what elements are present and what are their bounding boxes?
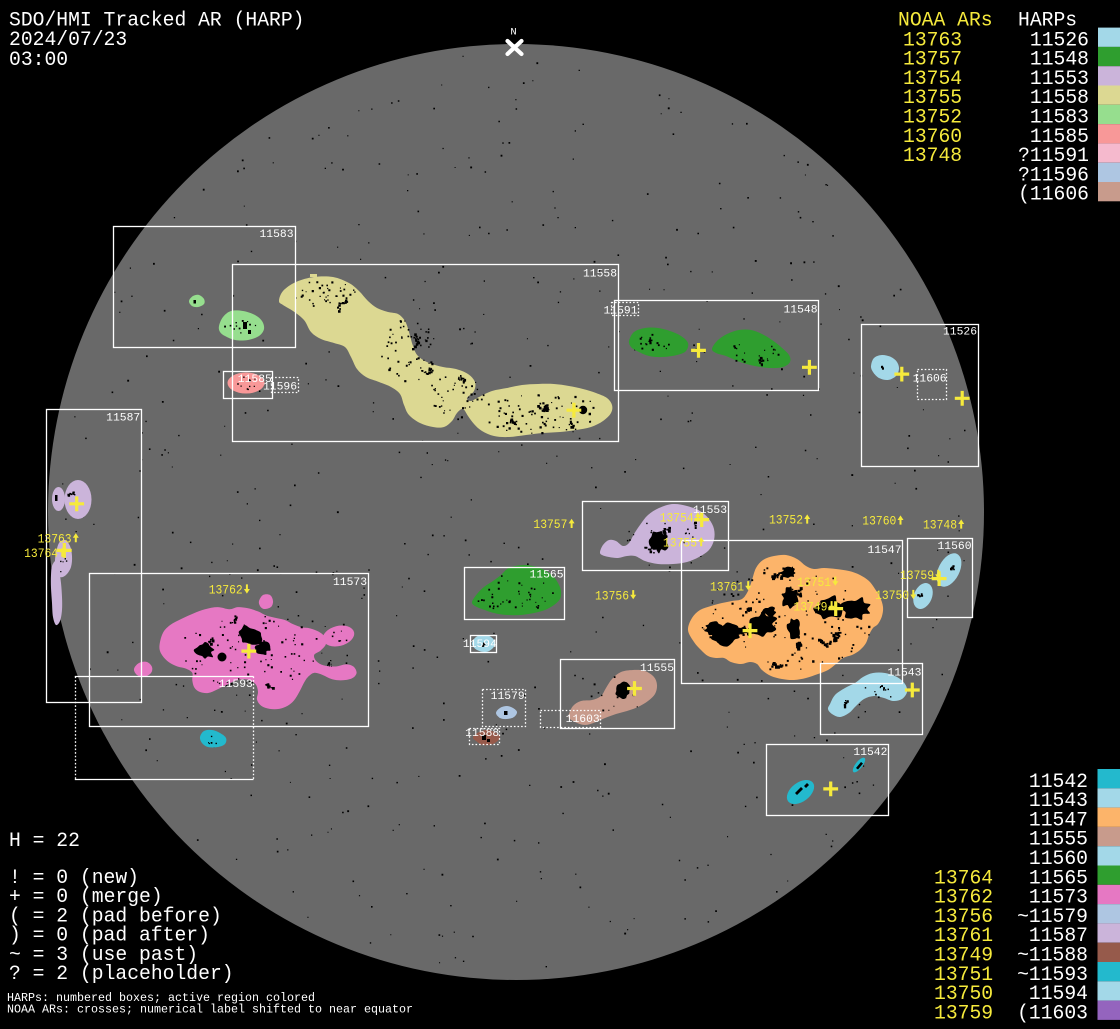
svg-text:03:00: 03:00: [9, 49, 68, 72]
svg-text:13748: 13748: [903, 145, 962, 168]
svg-text:11596: 11596: [263, 381, 297, 393]
svg-text:? = 2 (placeholder): ? = 2 (placeholder): [9, 963, 234, 986]
svg-text:11591: 11591: [604, 306, 638, 318]
svg-text:13754: 13754: [660, 511, 694, 526]
svg-text:13757: 13757: [533, 517, 567, 532]
svg-text:11587: 11587: [106, 413, 140, 425]
svg-text:11593: 11593: [219, 679, 253, 691]
svg-text:13759: 13759: [934, 1002, 993, 1024]
svg-text:13748: 13748: [923, 518, 957, 533]
svg-text:11548: 11548: [784, 305, 818, 317]
svg-text:13762: 13762: [209, 583, 243, 598]
svg-text:13755: 13755: [663, 535, 697, 550]
svg-text:11603: 11603: [566, 714, 600, 726]
svg-text:11573: 11573: [333, 577, 367, 589]
svg-text:13759: 13759: [900, 568, 934, 583]
svg-text:11558: 11558: [583, 269, 617, 281]
svg-text:11543: 11543: [887, 667, 921, 679]
svg-text:(11606: (11606: [1018, 184, 1089, 207]
svg-text:11526: 11526: [943, 327, 977, 339]
svg-text:(11603: (11603: [1017, 1002, 1088, 1024]
svg-text:11588: 11588: [465, 728, 499, 740]
svg-text:11579: 11579: [491, 691, 525, 703]
svg-text:13763: 13763: [38, 531, 72, 546]
svg-text:13752: 13752: [769, 513, 803, 528]
svg-text:13756: 13756: [595, 588, 629, 603]
svg-text:13760: 13760: [862, 514, 896, 529]
svg-text:13764: 13764: [24, 546, 58, 561]
svg-text:13751: 13751: [797, 575, 831, 590]
svg-text:11555: 11555: [640, 663, 674, 675]
svg-text:H = 22: H = 22: [9, 830, 80, 853]
svg-text:13749: 13749: [793, 599, 827, 614]
svg-text:NOAA ARs: crosses; numerical l: NOAA ARs: crosses; numerical label shift…: [7, 1003, 413, 1017]
svg-text:11542: 11542: [853, 747, 887, 759]
svg-text:11583: 11583: [260, 229, 294, 241]
svg-text:11606: 11606: [913, 373, 947, 385]
svg-text:N: N: [510, 27, 516, 39]
svg-text:13750: 13750: [875, 588, 909, 603]
svg-text:11594: 11594: [463, 639, 497, 651]
svg-text:11560: 11560: [938, 541, 972, 553]
svg-text:11565: 11565: [530, 570, 564, 582]
svg-text:11547: 11547: [868, 545, 902, 557]
svg-text:13761: 13761: [710, 579, 744, 594]
